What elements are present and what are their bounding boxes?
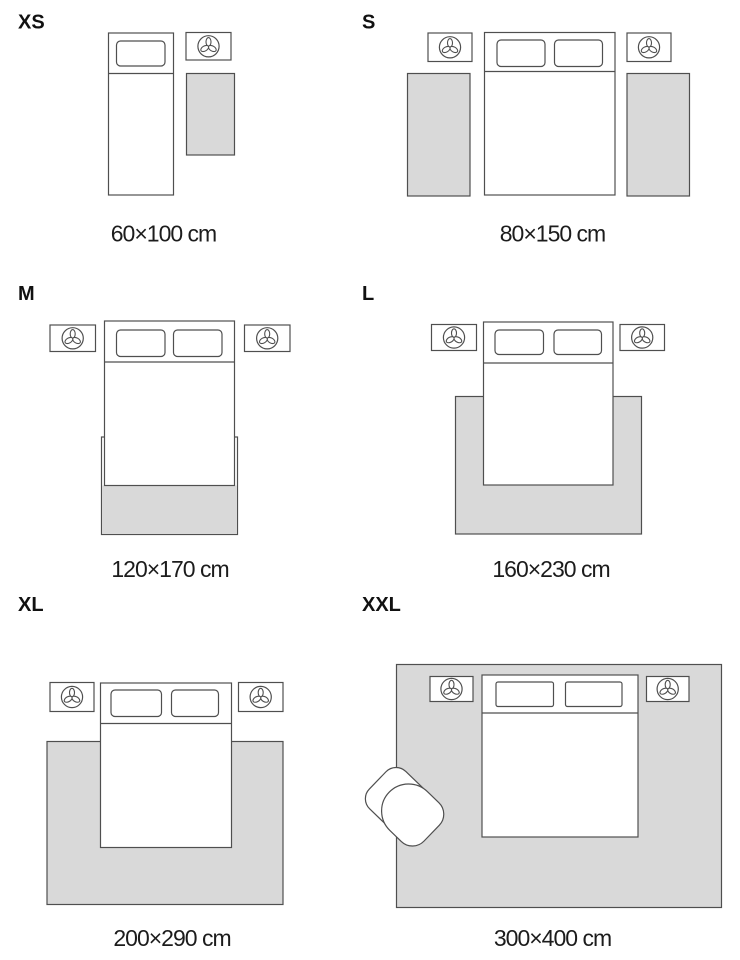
svg-text:160×230 cm: 160×230 cm [492,556,609,582]
svg-text:80×150 cm: 80×150 cm [500,221,605,247]
svg-text:XS: XS [18,12,45,34]
svg-text:300×400 cm: 300×400 cm [494,925,611,951]
svg-text:200×290 cm: 200×290 cm [113,925,230,951]
svg-text:120×170 cm: 120×170 cm [111,556,228,582]
svg-text:L: L [362,283,374,305]
svg-text:60×100 cm: 60×100 cm [111,221,216,247]
svg-text:XL: XL [18,594,44,616]
svg-text:S: S [362,12,375,34]
svg-text:M: M [18,283,35,305]
svg-text:XXL: XXL [362,594,401,616]
